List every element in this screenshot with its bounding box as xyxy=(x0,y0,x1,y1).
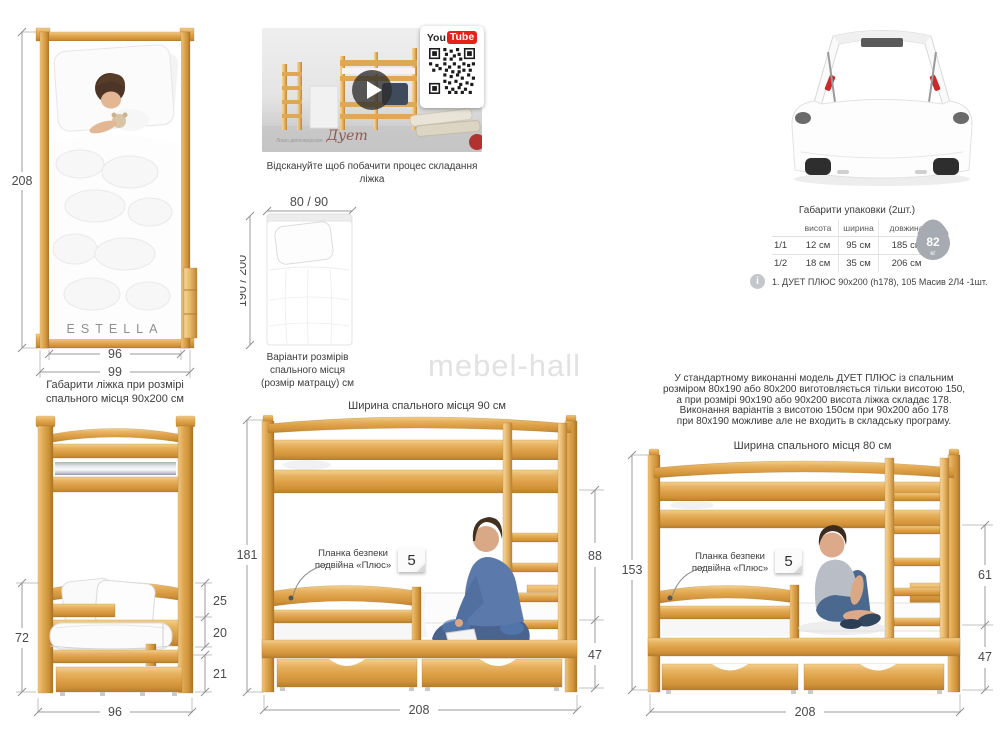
youtube-qr-card: YouTube xyxy=(420,26,484,108)
bed-side-view-80: 153 61 47 xyxy=(620,448,1000,735)
dim-width-96: 96 xyxy=(45,347,185,361)
cell: 12 см xyxy=(798,236,838,254)
bed-side-view-90: 181 88 47 xyxy=(232,415,617,735)
svg-text:88: 88 xyxy=(588,549,602,563)
weight-value: 82 xyxy=(926,235,940,249)
video-overlay-label: Ліжко двоповерхове Дует xyxy=(276,128,368,144)
overlay-label-line2: двоповерхове xyxy=(290,138,323,144)
dim-total-height: 181 xyxy=(237,416,258,696)
packaging-note: i 1. ДУЕТ ПЛЮС 90х200 (h178), 105 Масив … xyxy=(750,274,990,289)
dim-height-208: 208 xyxy=(12,28,38,352)
dim-mattress-width: 80 / 90 xyxy=(290,196,328,209)
col-header: ширина xyxy=(838,219,878,236)
dim-width: 96 xyxy=(34,705,196,719)
dim-label: 96 xyxy=(108,347,122,361)
mattress-drawing xyxy=(267,214,352,345)
drawers xyxy=(662,664,944,694)
watermark: mebel-hall xyxy=(428,348,581,384)
play-button[interactable] xyxy=(352,70,392,110)
wheel-left xyxy=(805,158,831,175)
dim-lower: 47 xyxy=(978,625,992,694)
svg-text:208: 208 xyxy=(795,705,816,719)
plank-safety-label-80: Планка безпеки подвійна «Плюс» xyxy=(690,551,770,574)
svg-text:208: 208 xyxy=(409,703,430,717)
car-figure xyxy=(775,18,990,193)
col-header: висота xyxy=(798,219,838,236)
dim-lower-height: 72 xyxy=(15,579,29,696)
dim-length: 208 xyxy=(260,703,581,717)
car-body xyxy=(792,100,972,179)
upper-mattress-edge xyxy=(55,462,176,475)
drawers xyxy=(277,659,562,691)
video-thumbnail[interactable]: Ліжко двоповерхове Дует YouTube xyxy=(262,28,482,152)
note-badge-90: 5 xyxy=(398,548,425,572)
pillow xyxy=(274,221,334,266)
svg-text:47: 47 xyxy=(588,648,602,662)
dim-right-stack: 25 20 21 xyxy=(201,579,227,696)
car-hatch-door xyxy=(813,31,951,107)
product-spec-sheet: 208 ESTELLA xyxy=(0,0,1000,735)
youtube-tube: Tube xyxy=(447,31,477,44)
brand-logo: ESTELLA xyxy=(67,322,164,336)
side-ladder-strip xyxy=(184,268,197,338)
weight-unit: кг xyxy=(930,250,936,257)
cell: 35 см xyxy=(838,254,878,272)
plank-safety-label-90: Планка безпеки подвійна «Плюс» xyxy=(313,548,393,571)
svg-text:61: 61 xyxy=(978,568,992,582)
scene-ladder xyxy=(282,62,302,130)
row-label: 1/2 xyxy=(772,254,798,272)
standard-config-note: У стандартному виконанні модель ДУЕТ ПЛЮ… xyxy=(648,374,980,428)
scene-box xyxy=(310,86,338,128)
side-view-90-title: Ширина спального місця 90 см xyxy=(302,400,552,414)
dim-length: 208 xyxy=(646,705,964,719)
overlay-label-line1: Ліжко xyxy=(276,138,289,144)
qr-code xyxy=(429,48,475,94)
dim-label: 208 xyxy=(12,174,33,188)
bedding: ESTELLA xyxy=(49,41,181,339)
svg-text:25: 25 xyxy=(213,594,227,608)
dim-lower: 47 xyxy=(588,620,602,692)
bed-top-view-figure: 208 ESTELLA xyxy=(0,14,232,398)
weight-badge: 82 кг xyxy=(910,210,956,262)
drawer xyxy=(56,667,182,696)
dim-mattress-length: 190 / 200 xyxy=(240,255,249,307)
dim-upper-gap: 88 xyxy=(588,486,602,624)
svg-text:181: 181 xyxy=(237,548,258,562)
svg-text:153: 153 xyxy=(622,563,643,577)
cell: 18 см xyxy=(798,254,838,272)
mattress-caption: Варіанти розмірів спального місця (розмі… xyxy=(230,351,385,390)
bed-drawing xyxy=(36,416,195,696)
svg-text:47: 47 xyxy=(978,650,992,664)
video-series-name: Дует xyxy=(327,128,368,144)
svg-text:96: 96 xyxy=(108,705,122,719)
packaging-title: Габарити упаковки (2шт.) xyxy=(790,205,924,216)
cell: 95 см xyxy=(838,236,878,254)
dim-upper-gap: 61 xyxy=(978,521,992,629)
info-icon: i xyxy=(750,274,765,289)
svg-text:21: 21 xyxy=(213,667,227,681)
mattress-size-figure: 80 / 90 190 / 200 xyxy=(240,196,375,351)
row-label: 1/1 xyxy=(772,236,798,254)
svg-text:20: 20 xyxy=(213,626,227,640)
bed-front-view: 72 25 20 21 xyxy=(0,410,232,735)
youtube-logo: YouTube xyxy=(427,31,477,44)
video-caption: Відскануйте щоб побачити процес складанн… xyxy=(258,160,486,186)
svg-text:72: 72 xyxy=(15,631,29,645)
note-badge-80: 5 xyxy=(775,549,802,573)
youtube-you: You xyxy=(427,32,446,44)
dim-total-height: 153 xyxy=(622,451,643,694)
dim-label: 99 xyxy=(108,365,122,379)
duvet xyxy=(52,134,178,336)
front-view-title: Габарити ліжка при розмірі спального міс… xyxy=(10,379,220,406)
note-text: 1. ДУЕТ ПЛЮС 90х200 (h178), 105 Масив 2Л… xyxy=(772,277,988,287)
play-icon xyxy=(367,81,382,99)
wheel-right xyxy=(933,158,959,175)
